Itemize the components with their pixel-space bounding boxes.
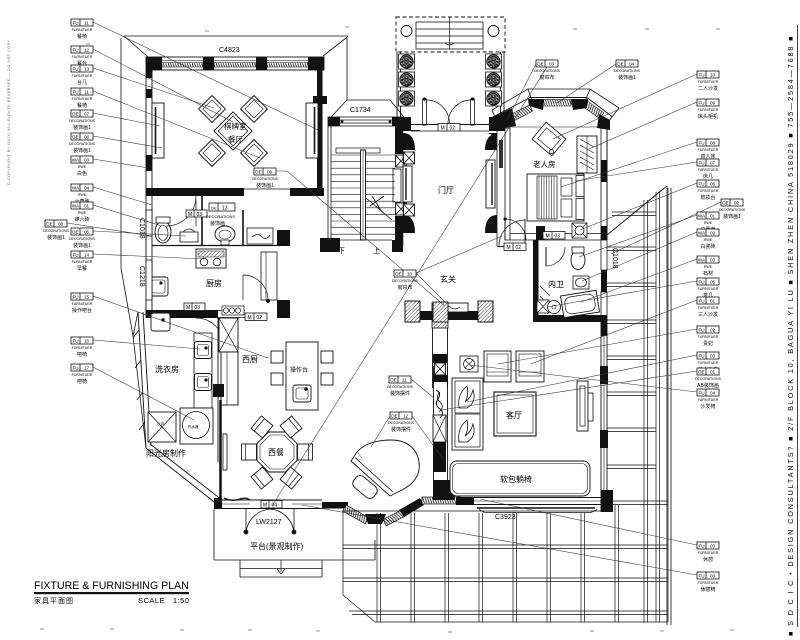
svg-text:C4823: C4823	[219, 47, 240, 54]
svg-text:FU: FU	[698, 141, 704, 146]
svg-text:14: 14	[84, 253, 90, 258]
svg-text:三人沙发: 三人沙发	[698, 311, 718, 318]
svg-text:沙发椅: 沙发椅	[700, 403, 715, 410]
svg-text:DECORATIONS: DECORATIONS	[719, 208, 746, 212]
svg-text:FURNITUER: FURNITUER	[698, 168, 719, 172]
svg-text:DECORATIONS: DECORATIONS	[43, 229, 70, 233]
svg-text:02: 02	[710, 328, 716, 333]
svg-text:04: 04	[84, 186, 90, 191]
svg-text:装饰画1: 装饰画1	[723, 213, 741, 220]
svg-text:03: 03	[549, 62, 555, 67]
svg-text:03: 03	[710, 574, 716, 579]
svg-text:DE: DE	[395, 272, 401, 277]
svg-text:FURNITUER: FURNITUER	[698, 551, 719, 555]
svg-text:DE: DE	[72, 135, 78, 140]
svg-text:13: 13	[84, 67, 90, 72]
svg-text:M: M	[263, 503, 267, 509]
svg-text:DE: DE	[255, 170, 261, 175]
svg-text:装饰摆件: 装饰摆件	[390, 390, 410, 397]
svg-text:17: 17	[84, 366, 90, 371]
svg-text:10: 10	[407, 272, 413, 277]
svg-text:休憩: 休憩	[703, 556, 713, 563]
svg-text:FIXTURE & FURNISHING PLAN: FIXTURE & FURNISHING PLAN	[34, 580, 189, 592]
svg-text:装饰画1: 装饰画1	[73, 242, 91, 249]
svg-text:DECORATIONS: DECORATIONS	[387, 385, 414, 389]
svg-text:LW2127: LW2127	[256, 519, 282, 526]
svg-text:02: 02	[257, 315, 263, 321]
svg-text:FURNITUER: FURNITUER	[72, 97, 93, 101]
svg-text:05: 05	[84, 230, 90, 235]
svg-text:02: 02	[450, 126, 456, 132]
svg-text:DECORATIONS: DECORATIONS	[614, 69, 641, 73]
svg-text:操作台: 操作台	[290, 366, 308, 374]
svg-text:07: 07	[84, 112, 90, 117]
svg-text:DE: DE	[46, 222, 52, 227]
svg-text:FURNITUER: FURNITUER	[698, 80, 719, 84]
svg-text:M: M	[248, 315, 252, 321]
svg-text:操作吧台: 操作吧台	[72, 307, 92, 314]
svg-text:早餐: 早餐	[77, 265, 87, 272]
svg-text:玄关: 玄关	[440, 274, 456, 284]
svg-text:C1734: C1734	[350, 107, 371, 114]
svg-text:C1218: C1218	[138, 266, 145, 287]
svg-text:DE: DE	[391, 414, 397, 419]
svg-text:西厨: 西厨	[242, 355, 258, 364]
svg-text:DECORATIONS: DECORATIONS	[69, 119, 96, 123]
svg-text:DECORATIONS: DECORATIONS	[392, 279, 419, 283]
svg-text:DE: DE	[390, 378, 396, 383]
svg-text:餐椅: 餐椅	[77, 33, 87, 40]
svg-text:FURNITUER: FURNITUER	[698, 108, 719, 112]
svg-text:FU: FU	[72, 366, 78, 371]
svg-text:FURNITUER: FURNITUER	[698, 581, 719, 585]
svg-text:DE: DE	[72, 112, 78, 117]
svg-text:12: 12	[84, 48, 90, 53]
svg-text:FURNITUER: FURNITUER	[72, 28, 93, 32]
svg-text:04: 04	[629, 62, 635, 67]
svg-text:RWE: RWE	[704, 265, 713, 269]
svg-text:08: 08	[58, 222, 64, 227]
svg-text:02: 02	[516, 245, 522, 251]
svg-text:WA: WA	[72, 204, 80, 209]
svg-text:FU: FU	[72, 48, 78, 53]
svg-text:餐厅: 餐厅	[228, 135, 243, 144]
svg-text:M: M	[441, 126, 445, 132]
svg-text:装饰画1: 装饰画1	[73, 147, 91, 154]
svg-text:WA: WA	[698, 258, 706, 263]
svg-text:门厅: 门厅	[438, 185, 454, 195]
svg-text:03: 03	[710, 258, 716, 263]
svg-text:FU: FU	[698, 354, 704, 359]
svg-text:FURNITUER: FURNITUER	[72, 373, 93, 377]
svg-text:■ S D C I C • DESIGN CONSULTAN: ■ S D C I C • DESIGN CONSULTANTS? ■ 2/F …	[786, 36, 795, 636]
svg-text:FU: FU	[72, 295, 78, 300]
svg-text:热水器: 热水器	[188, 424, 199, 429]
svg-text:© COPYRIGHT BY RUIXI ALL RIGHT: © COPYRIGHT BY RUIXI ALL RIGHTS RESERVED…	[7, 39, 11, 185]
svg-text:装饰画1: 装饰画1	[73, 124, 91, 131]
svg-text:FU: FU	[698, 182, 704, 187]
svg-text:FU: FU	[72, 90, 78, 95]
svg-text:M: M	[507, 245, 511, 251]
svg-text:FURNITUER: FURNITUER	[698, 148, 719, 152]
svg-text:软包躺椅: 软包躺椅	[500, 474, 532, 484]
svg-text:白瓷砖: 白瓷砖	[700, 243, 715, 250]
svg-text:家具平面图: 家具平面图	[34, 596, 74, 605]
svg-text:贵妃: 贵妃	[703, 340, 713, 347]
svg-text:厨房: 厨房	[206, 278, 222, 288]
svg-text:01: 01	[84, 204, 90, 209]
svg-text:WA: WA	[698, 231, 706, 236]
svg-text:DECORATIONS: DECORATIONS	[69, 237, 96, 241]
svg-text:FU: FU	[698, 299, 704, 304]
svg-text:地漏: 地漏	[157, 421, 164, 426]
svg-text:03: 03	[710, 544, 716, 549]
svg-text:洗衣房: 洗衣房	[155, 364, 179, 374]
svg-text:03: 03	[197, 212, 203, 218]
svg-text:11: 11	[402, 378, 407, 383]
svg-text:RWE: RWE	[78, 193, 87, 197]
svg-text:03: 03	[195, 305, 201, 311]
svg-text:床几: 床几	[703, 173, 713, 180]
svg-text:西餐: 西餐	[268, 448, 284, 457]
svg-text:06: 06	[84, 135, 90, 140]
svg-text:11: 11	[84, 90, 89, 95]
svg-text:内卫: 内卫	[548, 279, 564, 289]
svg-text:01: 01	[710, 370, 716, 375]
svg-text:RWE: RWE	[78, 165, 87, 169]
svg-text:DE: DE	[211, 206, 217, 211]
svg-text:DE: DE	[722, 201, 728, 206]
svg-text:吧椅: 吧椅	[77, 351, 87, 358]
svg-text:RWE: RWE	[78, 211, 87, 215]
svg-text:装饰画: 装饰画	[210, 220, 225, 227]
svg-text:FU: FU	[698, 101, 704, 106]
svg-text:FURNITUER: FURNITUER	[72, 74, 93, 78]
svg-text:RWE: RWE	[704, 221, 713, 225]
svg-text:03: 03	[84, 158, 90, 163]
svg-text:床头柜机: 床头柜机	[698, 113, 718, 120]
svg-text:FU: FU	[72, 339, 78, 344]
svg-text:09: 09	[710, 101, 716, 106]
svg-text:SCALE 1:50: SCALE 1:50	[138, 596, 189, 605]
svg-text:04: 04	[710, 391, 716, 396]
svg-text:FU: FU	[698, 161, 704, 166]
svg-text:装饰画1: 装饰画1	[256, 182, 274, 189]
svg-text:客厅: 客厅	[506, 410, 522, 420]
svg-text:WA: WA	[72, 158, 80, 163]
svg-text:M: M	[188, 212, 192, 218]
svg-text:09: 09	[267, 170, 273, 175]
svg-text:休憩椅: 休憩椅	[700, 586, 715, 593]
svg-text:FU: FU	[72, 253, 78, 258]
svg-text:08: 08	[710, 141, 716, 146]
svg-text:石材: 石材	[703, 270, 713, 277]
svg-text:AB装饰画: AB装饰画	[697, 382, 719, 389]
svg-text:13: 13	[222, 206, 228, 212]
svg-text:M: M	[186, 305, 190, 311]
svg-text:FURNITUER: FURNITUER	[698, 189, 719, 193]
svg-text:16: 16	[84, 339, 90, 344]
svg-text:老人房: 老人房	[533, 159, 556, 169]
svg-text:FURNITUER: FURNITUER	[72, 55, 93, 59]
svg-text:DE: DE	[537, 62, 543, 67]
svg-text:FURNITUER: FURNITUER	[72, 346, 93, 350]
svg-text:窗帘布: 窗帘布	[539, 74, 554, 81]
svg-text:窗帘布: 窗帘布	[397, 284, 412, 291]
svg-text:WA: WA	[72, 186, 80, 191]
svg-text:DE: DE	[617, 62, 623, 67]
svg-text:DECORATIONS: DECORATIONS	[388, 421, 415, 425]
svg-text:DECORATIONS: DECORATIONS	[206, 214, 235, 219]
svg-text:餐椅: 餐椅	[77, 102, 87, 109]
svg-text:装饰画1: 装饰画1	[47, 234, 65, 241]
svg-text:01: 01	[710, 214, 716, 219]
svg-text:06: 06	[710, 182, 716, 187]
svg-text:11: 11	[84, 21, 89, 26]
svg-text:FURNITUER: FURNITUER	[698, 335, 719, 339]
svg-text:C3923: C3923	[495, 514, 516, 521]
svg-text:02: 02	[734, 201, 740, 206]
svg-text:装饰画1: 装饰画1	[618, 74, 636, 81]
svg-text:装饰摆件: 装饰摆件	[391, 426, 411, 433]
svg-text:FU: FU	[72, 67, 78, 72]
svg-text:吧椅: 吧椅	[77, 378, 87, 385]
svg-text:12: 12	[403, 414, 409, 419]
svg-text:FU: FU	[698, 328, 704, 333]
svg-text:FU: FU	[72, 21, 78, 26]
svg-text:03: 03	[710, 354, 716, 359]
svg-text:平台(景观制作): 平台(景观制作)	[250, 541, 304, 551]
svg-text:DE: DE	[72, 230, 78, 235]
svg-text:棋牌室: 棋牌室	[224, 121, 247, 131]
svg-text:DECORATIONS: DECORATIONS	[252, 177, 279, 181]
svg-text:15: 15	[84, 295, 90, 300]
svg-text:FURNITUER: FURNITUER	[72, 302, 93, 306]
svg-text:DECORATIONS: DECORATIONS	[69, 142, 96, 146]
svg-text:FU: FU	[698, 544, 704, 549]
svg-text:FURNITUER: FURNITUER	[698, 398, 719, 402]
svg-text:FU: FU	[698, 574, 704, 579]
svg-text:WA: WA	[698, 214, 706, 219]
svg-text:RWE: RWE	[704, 238, 713, 242]
svg-text:梳妆台: 梳妆台	[700, 194, 715, 201]
svg-text:FU: FU	[698, 73, 704, 78]
svg-text:二人沙发: 二人沙发	[698, 85, 718, 92]
svg-text:台几: 台几	[77, 79, 87, 86]
svg-text:FU: FU	[698, 280, 704, 285]
svg-text:白色: 白色	[77, 170, 87, 177]
svg-text:07: 07	[710, 161, 716, 166]
svg-text:FURNITUER: FURNITUER	[698, 287, 719, 291]
svg-text:阳光房制作: 阳光房制作	[146, 448, 186, 458]
svg-text:10: 10	[710, 73, 716, 78]
svg-text:蜂六砖: 蜂六砖	[74, 216, 89, 223]
svg-text:FU: FU	[698, 391, 704, 396]
svg-text:03: 03	[555, 234, 561, 240]
svg-text:DE: DE	[698, 370, 704, 375]
svg-text:FURNITUER: FURNITUER	[72, 260, 93, 264]
svg-text:FURNITUER: FURNITUER	[698, 306, 719, 310]
svg-text:02: 02	[710, 231, 716, 236]
svg-text:01: 01	[710, 299, 716, 304]
svg-text:M: M	[546, 234, 550, 240]
svg-text:05: 05	[710, 280, 716, 285]
svg-text:DECORATIONS: DECORATIONS	[695, 377, 722, 381]
svg-text:C1018: C1018	[138, 218, 145, 239]
svg-text:FURNITUER: FURNITUER	[698, 361, 719, 365]
svg-text:DECORATIONS: DECORATIONS	[534, 69, 561, 73]
